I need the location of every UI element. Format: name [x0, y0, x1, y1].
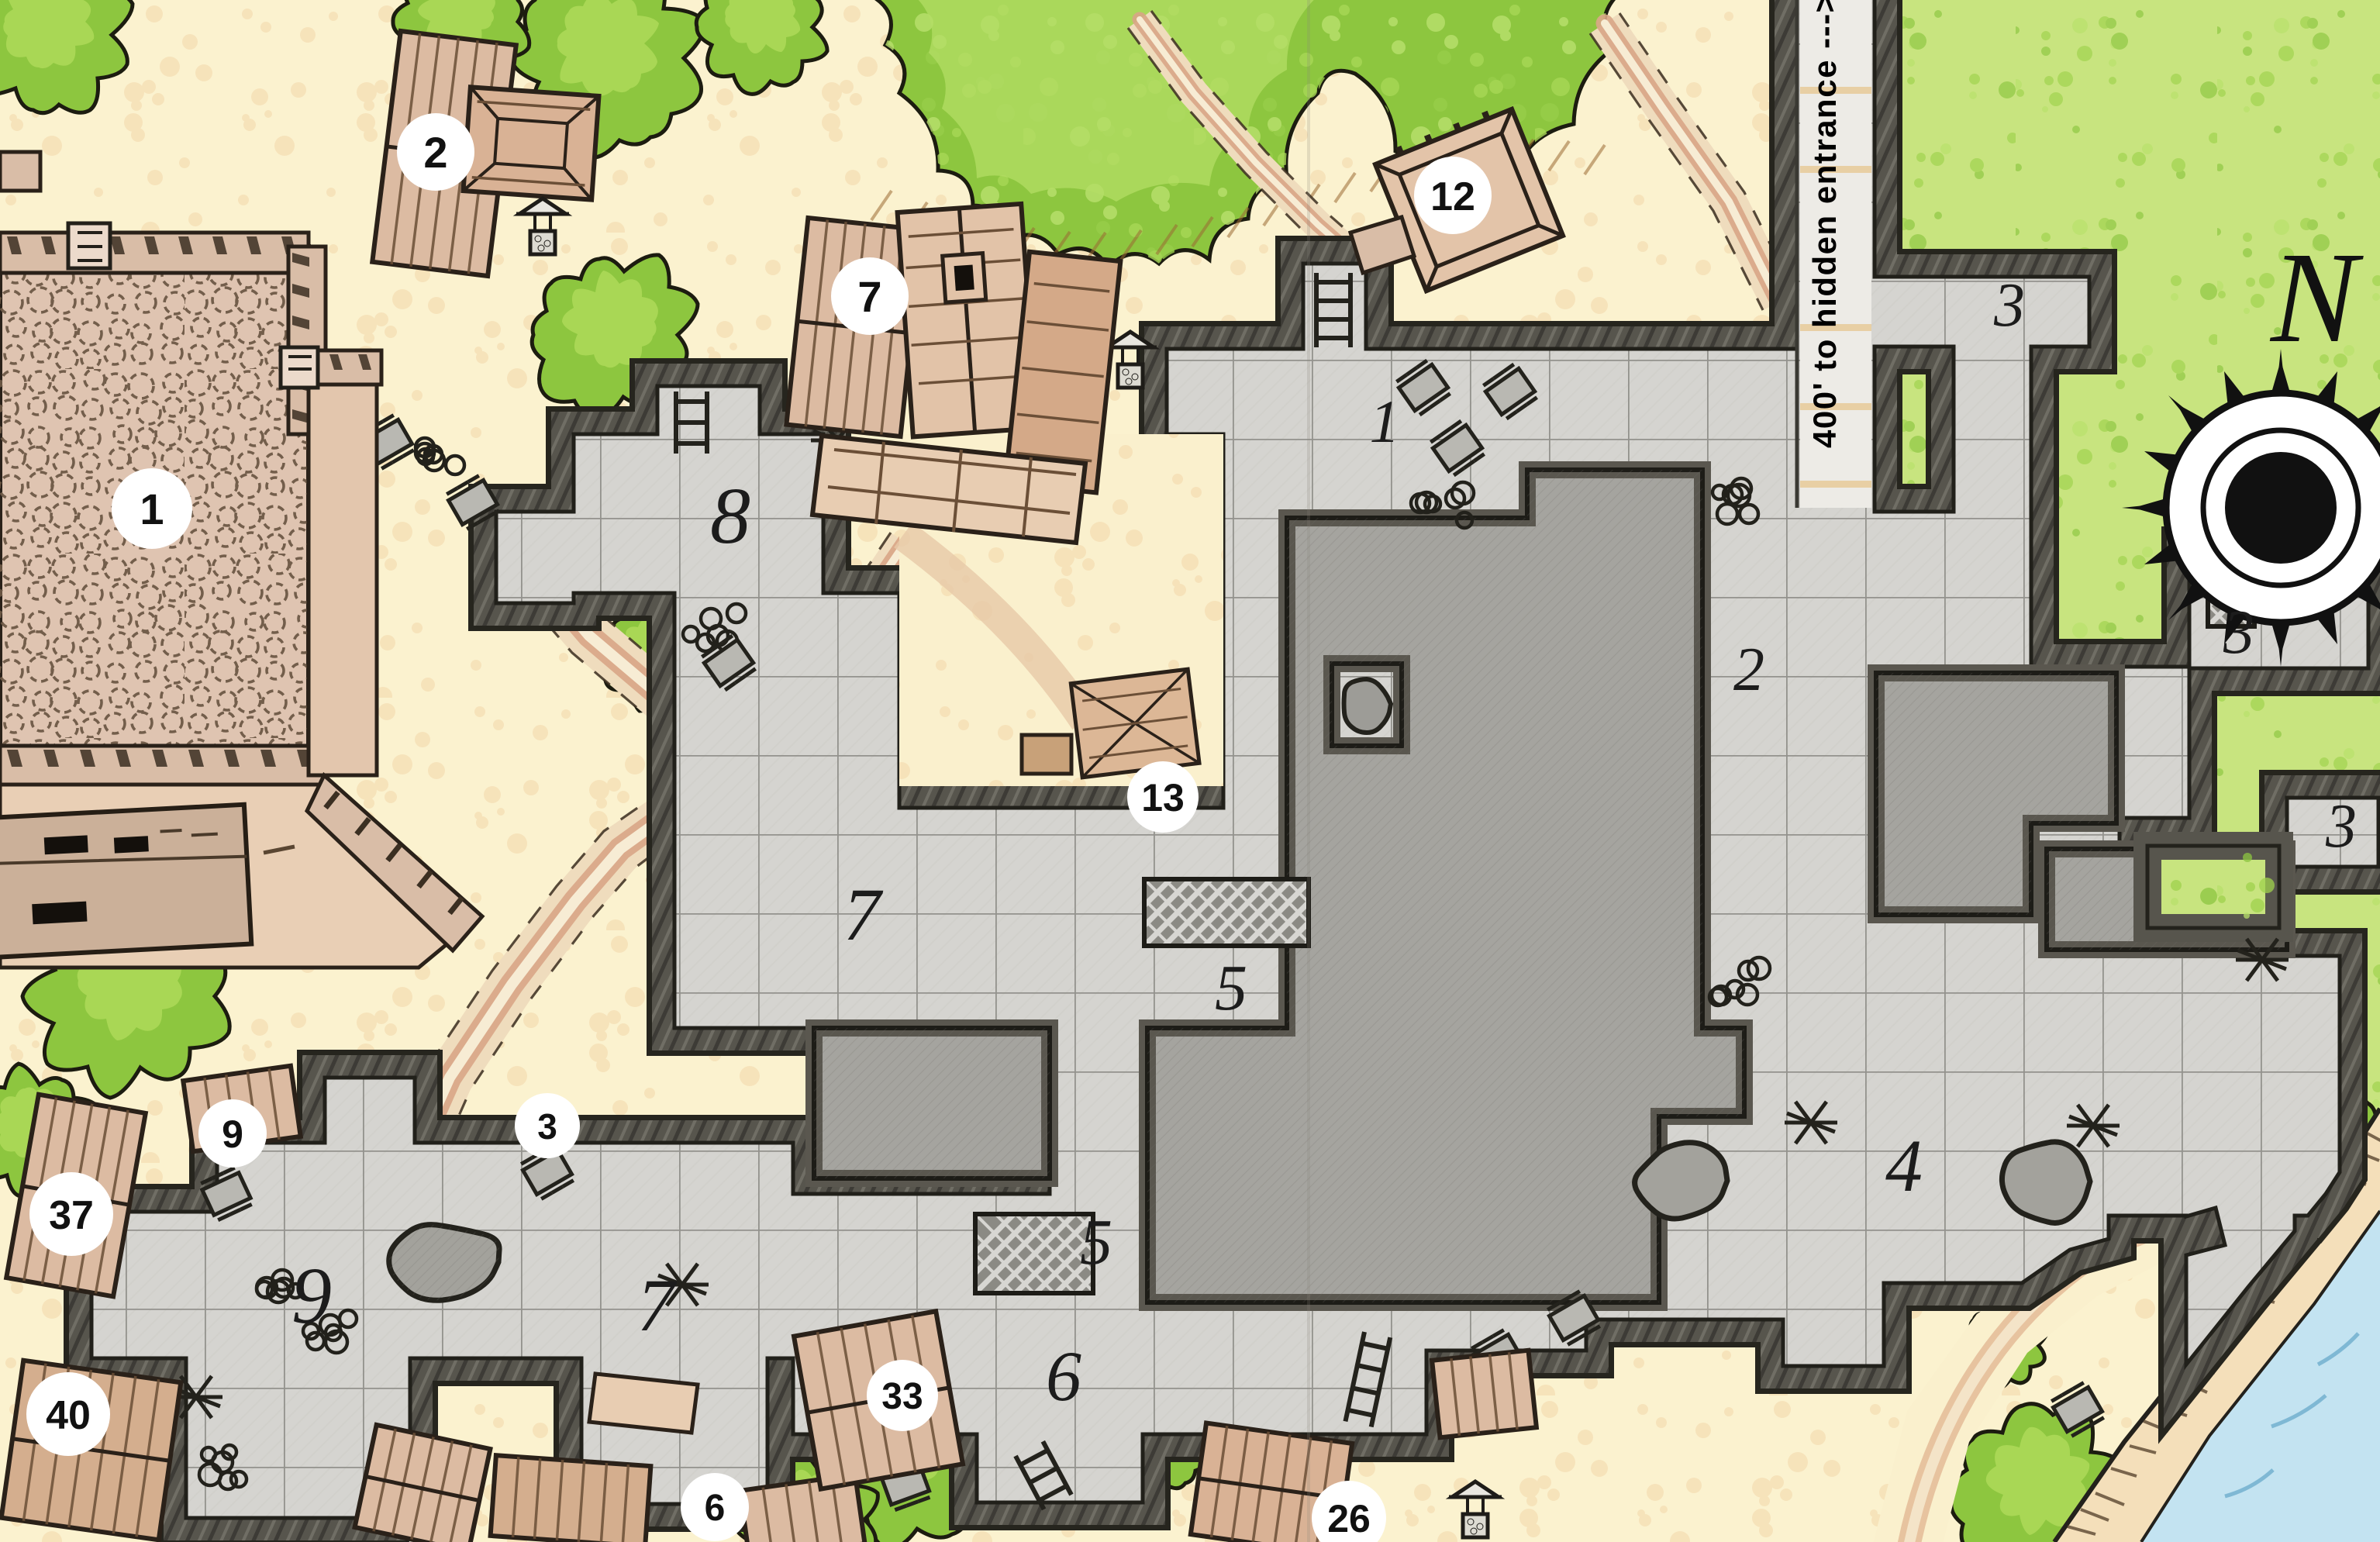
- svg-text:33: 33: [881, 1376, 923, 1417]
- svg-text:1: 1: [1370, 388, 1400, 455]
- svg-text:400' to hidden entrance --->: 400' to hidden entrance --->: [1806, 0, 1843, 448]
- svg-text:6: 6: [705, 1488, 726, 1529]
- svg-text:N: N: [2269, 226, 2364, 370]
- svg-text:37: 37: [49, 1193, 94, 1238]
- svg-text:8: 8: [710, 471, 750, 561]
- svg-text:13: 13: [1141, 776, 1185, 819]
- svg-text:9: 9: [222, 1113, 243, 1156]
- svg-text:5: 5: [1215, 952, 1247, 1024]
- svg-text:7: 7: [857, 272, 881, 321]
- svg-text:3: 3: [2325, 792, 2357, 861]
- svg-text:7: 7: [843, 873, 884, 956]
- svg-text:3: 3: [1993, 271, 2025, 340]
- svg-text:6: 6: [1046, 1337, 1081, 1416]
- svg-text:26: 26: [1327, 1497, 1371, 1540]
- svg-text:5: 5: [1080, 1206, 1112, 1278]
- svg-text:12: 12: [1430, 174, 1475, 219]
- svg-text:1: 1: [140, 485, 164, 533]
- svg-text:2: 2: [423, 128, 447, 177]
- svg-text:2: 2: [1733, 636, 1764, 704]
- svg-text:3: 3: [537, 1106, 557, 1147]
- svg-text:9: 9: [291, 1251, 332, 1340]
- svg-text:3: 3: [2223, 599, 2254, 667]
- svg-text:4: 4: [1885, 1124, 1923, 1207]
- svg-text:40: 40: [46, 1393, 91, 1438]
- svg-text:7: 7: [637, 1264, 678, 1347]
